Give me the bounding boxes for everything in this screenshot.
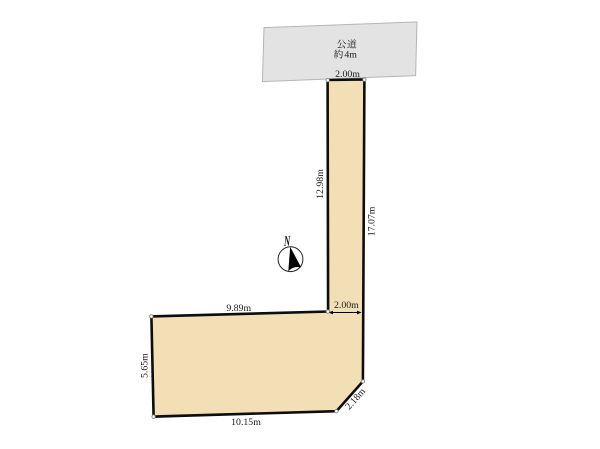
svg-text:10.15m: 10.15m bbox=[231, 417, 261, 428]
svg-text:9.89m: 9.89m bbox=[226, 303, 251, 314]
svg-text:17.07m: 17.07m bbox=[367, 206, 378, 236]
svg-text:5.65m: 5.65m bbox=[140, 353, 151, 378]
svg-text:12.98m: 12.98m bbox=[315, 169, 326, 199]
svg-text:2.00m: 2.00m bbox=[335, 69, 360, 80]
svg-text:2.00m: 2.00m bbox=[334, 300, 359, 311]
svg-text:4m: 4m bbox=[344, 50, 357, 61]
